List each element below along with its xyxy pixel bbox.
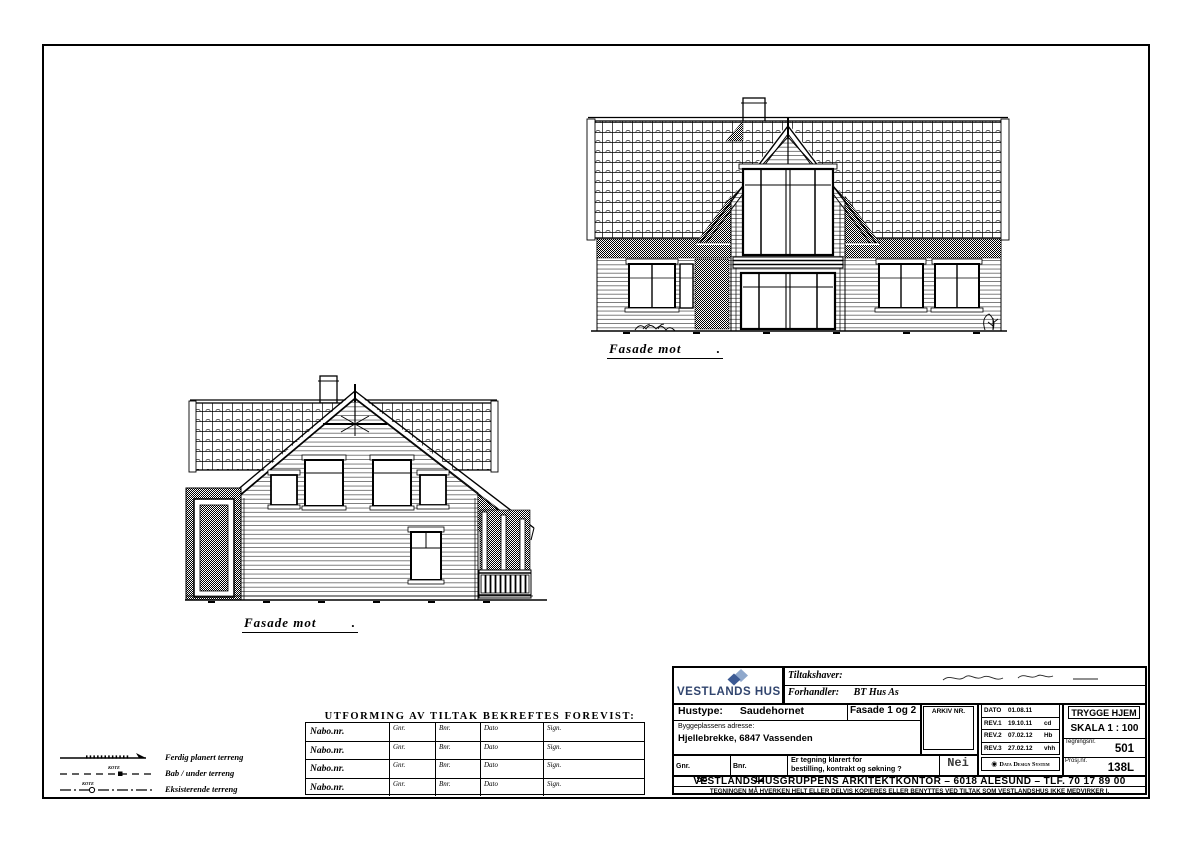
kote-marker-1: KOTE (107, 765, 120, 770)
revision-row: REV.1 19.10.11 cd (982, 717, 1059, 730)
klarert-line-1: Er tegning klarert for (791, 755, 937, 764)
title-block: VESTLANDS HUS Tiltakshaver: Forhandler: … (672, 666, 1147, 795)
facade-1-caption-suffix: . (717, 341, 721, 357)
neighbor-row: Nabo.nr. Gnr. Bnr. Dato Sign. (306, 778, 644, 797)
brand-logo: VESTLANDS HUS (674, 668, 782, 703)
tiltakshaver-label: Tiltakshaver: (788, 670, 843, 681)
legend-item-2: Bab / under terreng (165, 768, 234, 778)
neighbor-table: Nabo.nr. Gnr. Bnr. Dato Sign. Nabo.nr. G… (305, 722, 645, 795)
revision-row: REV.2 07.02.12 Hb (982, 729, 1059, 742)
dato-value: 01.08.11 (1008, 705, 1044, 717)
klarert-answer: Nei (940, 756, 976, 774)
brand-name: VESTLANDS HUS (677, 686, 781, 698)
terrain-legend-symbols: KOTE KOTE (58, 746, 163, 796)
bnr-cell: Bnr. 12 (733, 755, 785, 774)
legend-item-3: Eksisterende terreng (165, 784, 238, 794)
gnr-cell: Gnr. 58 (676, 755, 728, 774)
address-label: Byggeplassens adresse: (678, 723, 918, 730)
arkiv-label: ARKIV NR. (922, 708, 975, 715)
facade-2-drawing (183, 372, 553, 612)
office-line: VESTLANDSHUSGRUPPENS ARKITEKTKONTOR – 60… (674, 776, 1145, 786)
facade-2-caption: Fasade mot . (242, 614, 358, 633)
disclaimer-line: TEGNINGEN MÅ HVERKEN HELT ELLER DELVIS K… (674, 788, 1145, 796)
hustype-value: Saudehornet (740, 705, 804, 717)
tegningsnr-cell: Tegningsnr. 501 (1065, 739, 1144, 756)
revision-table: DATO 01.08.11 REV.1 19.10.11 cd REV.2 07… (979, 704, 1062, 754)
dds-name: Data Design System (999, 761, 1049, 768)
facade-1-caption-label: Fasade mot (609, 341, 681, 357)
prosjnr-cell: Prosj.nr. 138L (1065, 758, 1144, 774)
facade-1-caption: Fasade mot . (607, 340, 723, 359)
arkiv-cell: ARKIV NR. (922, 705, 975, 752)
neighbor-row: Nabo.nr. Gnr. Bnr. Dato Sign. (306, 723, 644, 741)
facade-2-caption-label: Fasade mot (244, 615, 316, 631)
fasade-cell: Fasade 1 og 2 (850, 705, 920, 720)
facade-2-caption-suffix: . (352, 615, 356, 631)
trygge-hjem-badge: TRYGGE HJEM (1068, 706, 1140, 719)
neighbor-row: Nabo.nr. Gnr. Bnr. Dato Sign. (306, 759, 644, 778)
forhandler-value: BT Hus As (854, 687, 899, 698)
neighbor-row: Nabo.nr. Gnr. Bnr. Dato Sign. (306, 741, 644, 760)
address-cell: Byggeplassens adresse: Hjellebrekke, 684… (678, 723, 918, 753)
skala-value: SKALA 1 : 100 (1064, 723, 1145, 737)
hustype-cell: Hustype: Saudehornet (678, 705, 844, 720)
neighbor-table-title: UTFORMING AV TILTAK BEKREFTES FOREVIST: (320, 711, 640, 722)
dato-label: DATO (982, 705, 1008, 717)
dds-logo-cell: ◉ Data Design System (979, 756, 1062, 773)
gnr-label: Gnr. (676, 763, 690, 770)
klarert-question-cell: Er tegning klarert for bestilling, kontr… (791, 755, 937, 774)
kote-marker-2: KOTE (81, 781, 94, 786)
hustype-label: Hustype: (678, 705, 723, 717)
drawing-sheet: Fasade mot . (0, 0, 1191, 842)
bnr-label: Bnr. (733, 763, 747, 770)
terrain-legend: KOTE KOTE Ferdig planert terreng Bab / u… (58, 746, 308, 796)
tiltakshaver-row: Tiltakshaver: (788, 670, 1143, 685)
revision-row-dato: DATO 01.08.11 (982, 705, 1059, 717)
brand-diamond-icon (726, 669, 752, 686)
address-value: Hjellebrekke, 6847 Vassenden (678, 733, 918, 744)
dds-globe-icon: ◉ (991, 760, 997, 768)
tiltakshaver-signature-scribble (938, 670, 1138, 685)
facade-1-drawing (583, 93, 1013, 343)
forhandler-label: Forhandler: (788, 687, 839, 698)
forhandler-row: Forhandler: BT Hus As (788, 687, 1143, 702)
revision-row: REV.3 27.02.12 vhh (982, 742, 1059, 755)
legend-item-1: Ferdig planert terreng (165, 752, 243, 762)
klarert-line-2: bestilling, kontrakt og søkning ? (791, 764, 937, 773)
